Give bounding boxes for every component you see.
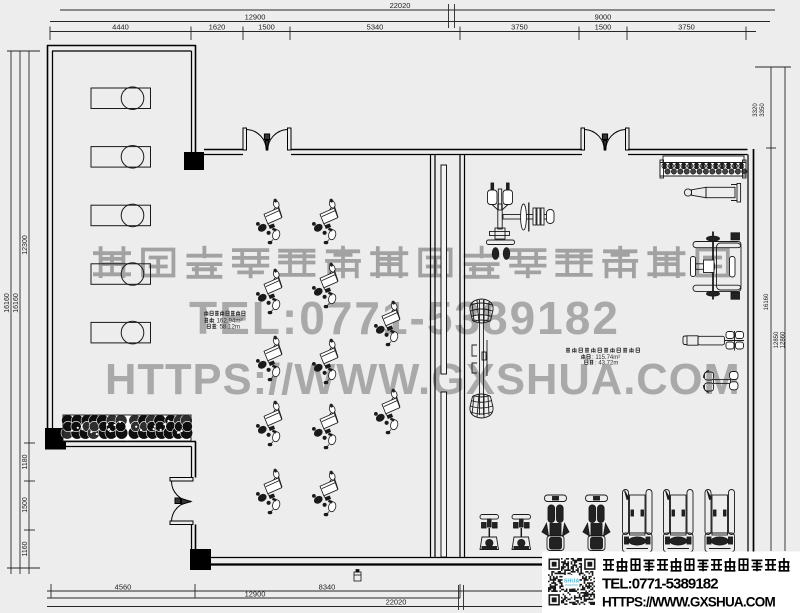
- svg-text:1500: 1500: [595, 23, 612, 32]
- svg-text:22020: 22020: [390, 1, 411, 10]
- svg-text:: 58.12m: : 58.12m: [216, 324, 240, 331]
- svg-text:5340: 5340: [367, 23, 384, 32]
- svg-text:8340: 8340: [319, 583, 336, 592]
- svg-text:HTTPS://WWW.GXSHUA.COM: HTTPS://WWW.GXSHUA.COM: [602, 595, 775, 610]
- svg-text:SHUA: SHUA: [564, 579, 580, 585]
- svg-text:4440: 4440: [112, 23, 129, 32]
- svg-text:16160: 16160: [764, 293, 770, 310]
- svg-text:: 43.72m: : 43.72m: [595, 361, 618, 367]
- svg-text:TEL:0771-5389182: TEL:0771-5389182: [602, 576, 718, 593]
- svg-text:TEL:0771-5389182: TEL:0771-5389182: [189, 292, 620, 344]
- svg-text:12860: 12860: [781, 331, 787, 348]
- svg-text:12900: 12900: [245, 590, 266, 599]
- svg-text:3750: 3750: [511, 23, 528, 32]
- svg-text:1160: 1160: [22, 541, 29, 556]
- svg-text:3320: 3320: [753, 103, 759, 117]
- svg-text:1180: 1180: [22, 454, 29, 469]
- svg-text:3750: 3750: [678, 23, 695, 32]
- svg-text:12850: 12850: [774, 331, 780, 348]
- svg-text:3350: 3350: [760, 103, 766, 117]
- svg-text:1500: 1500: [22, 497, 29, 513]
- svg-text:4560: 4560: [115, 583, 132, 592]
- svg-text:16160: 16160: [4, 293, 11, 313]
- svg-text:1620: 1620: [209, 23, 226, 32]
- svg-text:12300: 12300: [22, 235, 29, 255]
- svg-text:HTTPS://WWW.GXSHUA.COM: HTTPS://WWW.GXSHUA.COM: [105, 356, 741, 404]
- svg-text:9000: 9000: [595, 13, 612, 22]
- svg-text:22020: 22020: [386, 598, 407, 607]
- svg-text:16160: 16160: [13, 293, 20, 313]
- svg-text:1500: 1500: [258, 23, 275, 32]
- svg-text:12900: 12900: [245, 13, 266, 22]
